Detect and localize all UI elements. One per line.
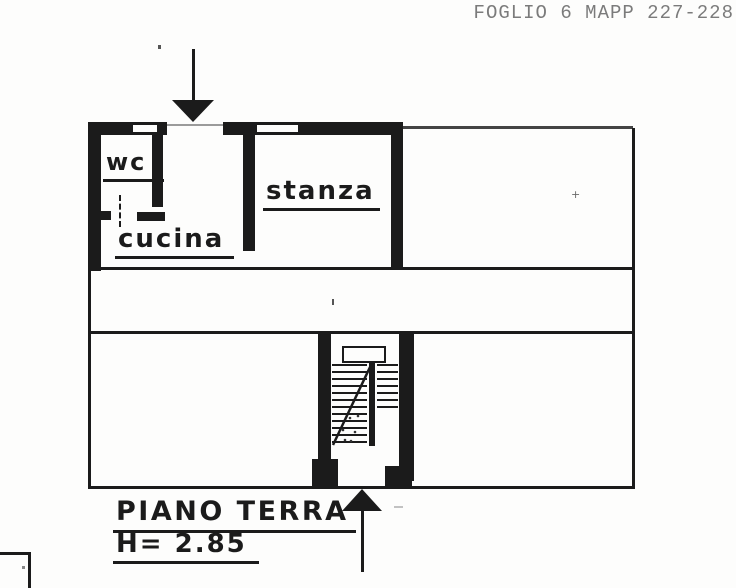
- building-edge-top-right: [403, 126, 633, 129]
- wall-left-outer: [88, 122, 101, 271]
- scan-speck: [332, 299, 334, 305]
- corridor-line-top: [88, 267, 635, 270]
- building-edge-right: [632, 128, 635, 489]
- wall-wc-bottom: [137, 212, 165, 221]
- floor-title: PIANO TERRA: [113, 498, 356, 533]
- floor-height-label: H= 2.85: [113, 531, 259, 564]
- entrance-threshold-line: [167, 124, 223, 126]
- corridor-line-bottom: [88, 331, 635, 334]
- scan-speck: +: [571, 188, 580, 201]
- wall-stanza-left: [243, 133, 255, 251]
- window-stanza: [257, 125, 298, 132]
- stair-direction-line: [325, 358, 387, 453]
- room-label-wc: wc: [103, 150, 164, 182]
- sheet-reference: FOGLIO 6 MAPP 227-228: [448, 2, 734, 24]
- building-edge-left-lower: [88, 270, 91, 489]
- wall-stanza-right: [391, 122, 403, 270]
- window-wc: [133, 125, 157, 132]
- stairwell-wall-right: [399, 334, 414, 481]
- scan-speck: [22, 566, 25, 569]
- scan-speck: [158, 45, 161, 49]
- document-page: FOGLIO 6 MAPP 227-228: [0, 0, 736, 588]
- scan-speck: [394, 506, 403, 508]
- room-label-stanza: stanza: [263, 178, 380, 211]
- wc-door-leaf: [119, 195, 121, 227]
- room-label-cucina: cucina: [115, 226, 234, 259]
- wall-wc-door-stub: [98, 211, 111, 220]
- door-jamb-left: [312, 459, 338, 487]
- door-jamb-right: [385, 466, 412, 487]
